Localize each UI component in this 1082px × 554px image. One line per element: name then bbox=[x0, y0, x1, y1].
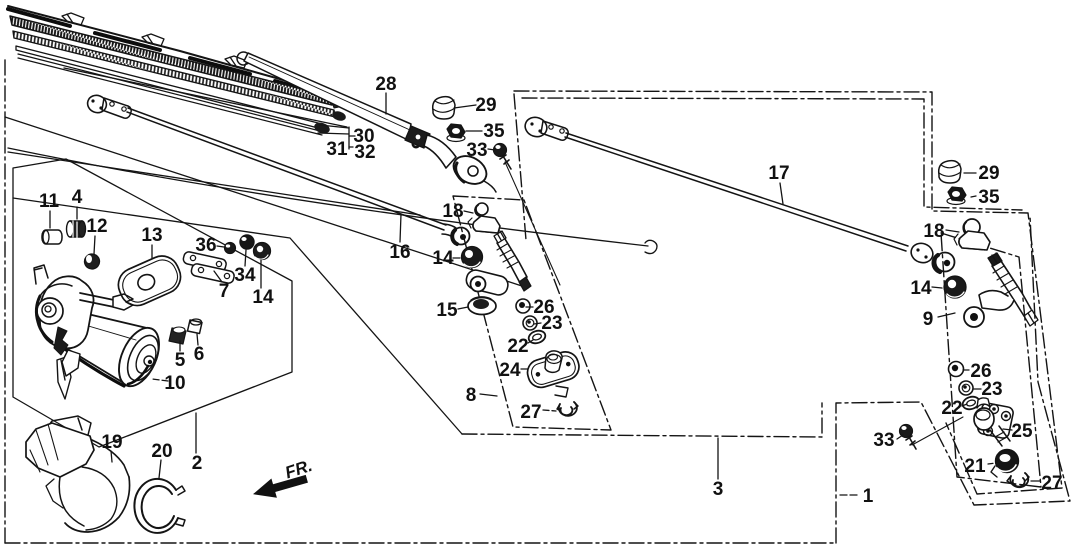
svg-text:12: 12 bbox=[86, 216, 107, 237]
svg-text:35: 35 bbox=[483, 121, 505, 142]
svg-text:18: 18 bbox=[442, 201, 463, 222]
svg-text:22: 22 bbox=[941, 398, 962, 419]
svg-text:11: 11 bbox=[39, 191, 60, 212]
svg-text:21: 21 bbox=[964, 456, 986, 477]
svg-text:1: 1 bbox=[863, 486, 874, 507]
svg-text:14: 14 bbox=[910, 278, 932, 299]
svg-text:24: 24 bbox=[499, 360, 521, 381]
svg-text:34: 34 bbox=[234, 265, 256, 286]
svg-text:36: 36 bbox=[195, 235, 216, 256]
svg-text:2: 2 bbox=[192, 453, 203, 474]
svg-text:15: 15 bbox=[436, 300, 458, 321]
svg-text:25: 25 bbox=[1011, 421, 1033, 442]
svg-text:33: 33 bbox=[466, 140, 487, 161]
svg-text:10: 10 bbox=[164, 373, 185, 394]
svg-text:14: 14 bbox=[432, 248, 454, 269]
svg-text:33: 33 bbox=[873, 430, 894, 451]
svg-text:31: 31 bbox=[326, 139, 348, 160]
svg-text:14: 14 bbox=[252, 287, 274, 308]
svg-text:18: 18 bbox=[923, 221, 944, 242]
svg-text:22: 22 bbox=[507, 336, 528, 357]
svg-text:35: 35 bbox=[978, 187, 1000, 208]
svg-text:4: 4 bbox=[72, 187, 83, 208]
svg-text:5: 5 bbox=[175, 350, 186, 371]
svg-text:16: 16 bbox=[389, 242, 410, 263]
svg-text:20: 20 bbox=[151, 441, 172, 462]
svg-text:28: 28 bbox=[375, 74, 396, 95]
svg-text:3: 3 bbox=[713, 479, 724, 500]
svg-text:19: 19 bbox=[101, 432, 122, 453]
svg-text:6: 6 bbox=[194, 344, 205, 365]
svg-text:8: 8 bbox=[466, 385, 477, 406]
svg-text:29: 29 bbox=[475, 95, 496, 116]
svg-text:9: 9 bbox=[923, 309, 934, 330]
svg-text:13: 13 bbox=[141, 225, 162, 246]
svg-text:17: 17 bbox=[768, 163, 789, 184]
svg-text:27: 27 bbox=[520, 402, 541, 423]
svg-text:7: 7 bbox=[219, 281, 230, 302]
svg-text:27: 27 bbox=[1041, 473, 1062, 494]
svg-text:23: 23 bbox=[981, 379, 1002, 400]
svg-text:29: 29 bbox=[978, 163, 999, 184]
svg-text:23: 23 bbox=[541, 313, 562, 334]
svg-text:32: 32 bbox=[354, 142, 375, 163]
